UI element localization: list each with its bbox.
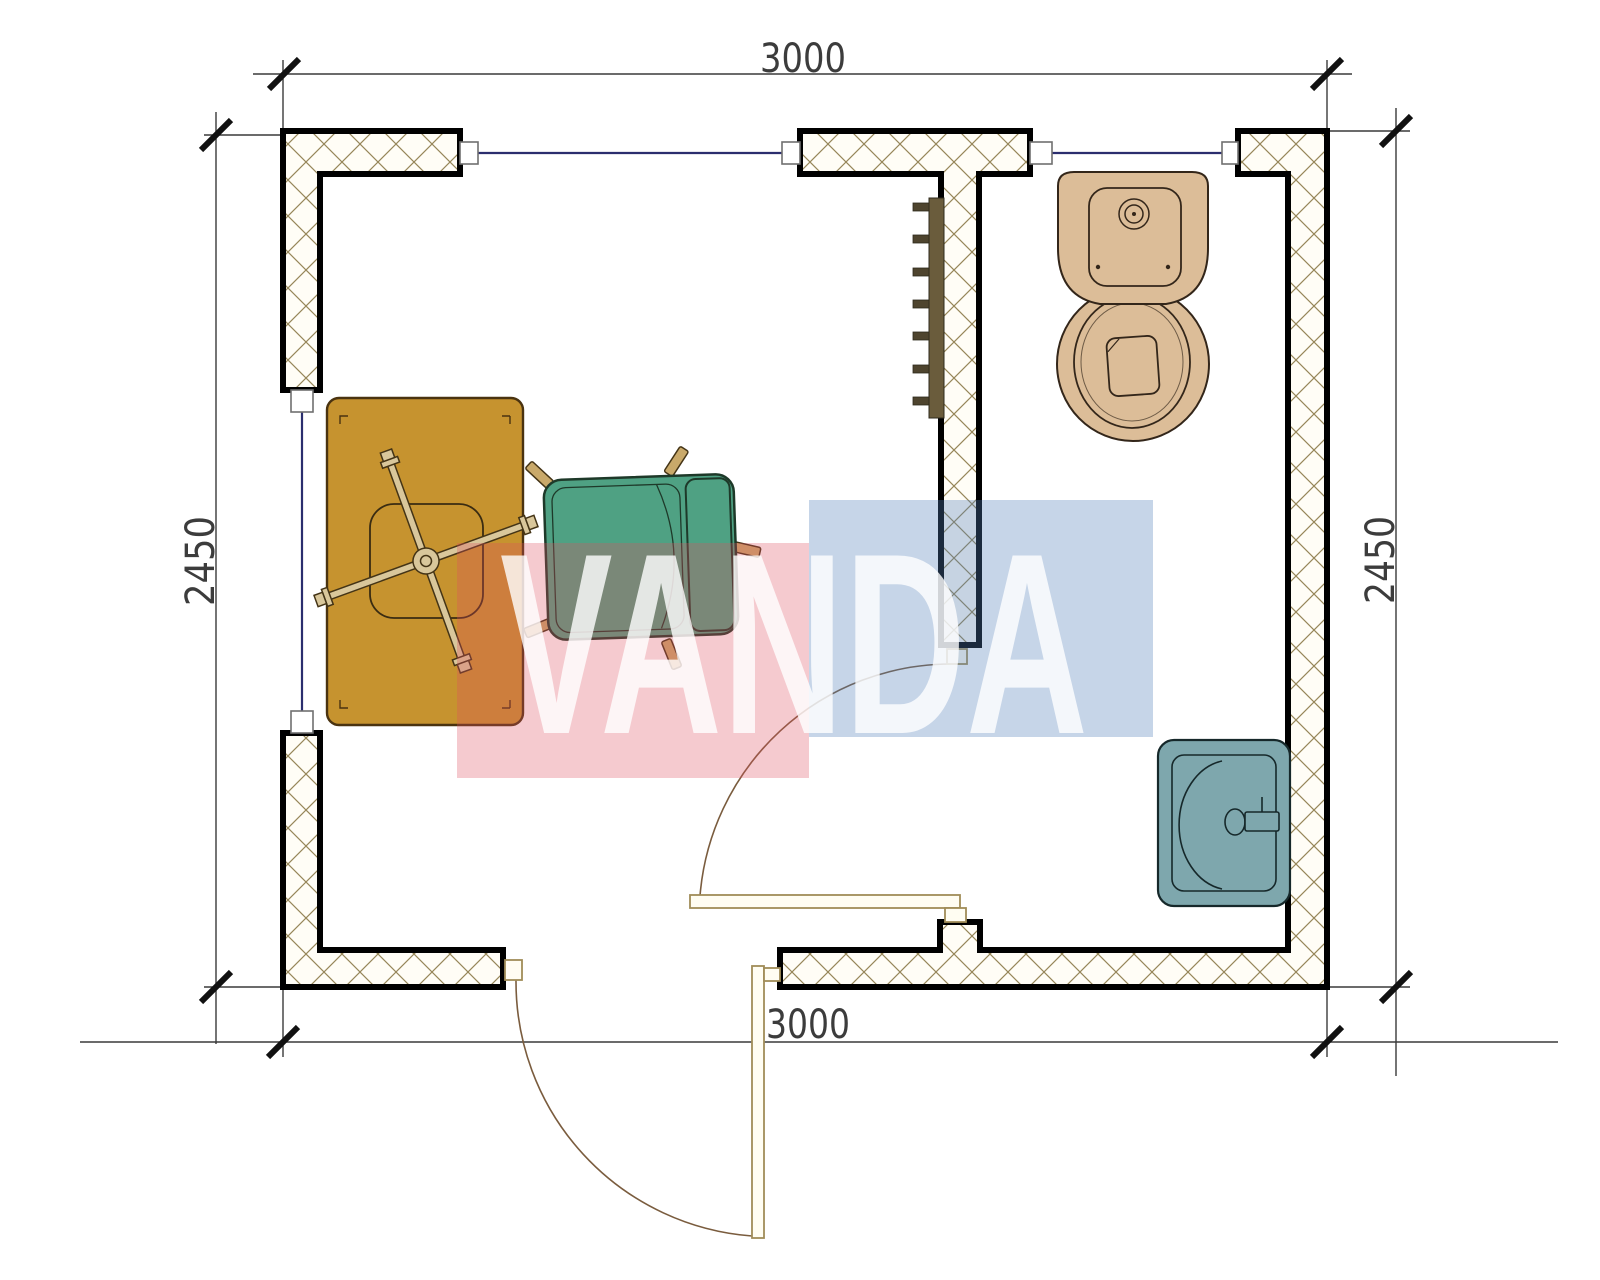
window-jamb (460, 142, 478, 164)
window-jamb (1222, 142, 1238, 164)
window-jamb (291, 390, 313, 412)
exterior-door (505, 960, 780, 1238)
toilet (1057, 172, 1209, 441)
radiator-bar (929, 198, 944, 418)
window-jamb (291, 711, 313, 733)
radiator (913, 198, 944, 418)
dim-label-left: 2450 (178, 516, 224, 606)
exterior-door-jamb (505, 960, 522, 980)
exterior-door-swing-arc (516, 980, 752, 1236)
toilet-tank (1058, 172, 1208, 304)
toilet-flush-button-dot (1132, 212, 1136, 216)
wall-top-left-L (283, 131, 460, 390)
dim-label-right: 2450 (1358, 516, 1404, 604)
floor-plan-canvas: 3000 3000 2450 2450 (0, 0, 1600, 1280)
interior-door-hinge (945, 908, 966, 922)
radiator-fins (913, 203, 929, 405)
window-jamb (782, 142, 800, 164)
dim-label-top: 3000 (760, 36, 846, 82)
watermark-text: VANDA (500, 499, 1088, 788)
toilet-bolt (1166, 265, 1170, 269)
interior-door-leaf (690, 895, 960, 908)
dim-label-bottom: 3000 (766, 1002, 850, 1048)
watermark: VANDA (457, 499, 1153, 788)
sink-faucet (1245, 812, 1279, 831)
exterior-door-leaf (752, 966, 764, 1238)
sink-drain (1225, 809, 1245, 835)
sink (1158, 740, 1290, 906)
floor-plan-page: 3000 3000 2450 2450 (0, 0, 1600, 1280)
exterior-door-hinge (764, 968, 780, 981)
window-jamb (1030, 142, 1052, 164)
toilet-bolt (1096, 265, 1100, 269)
